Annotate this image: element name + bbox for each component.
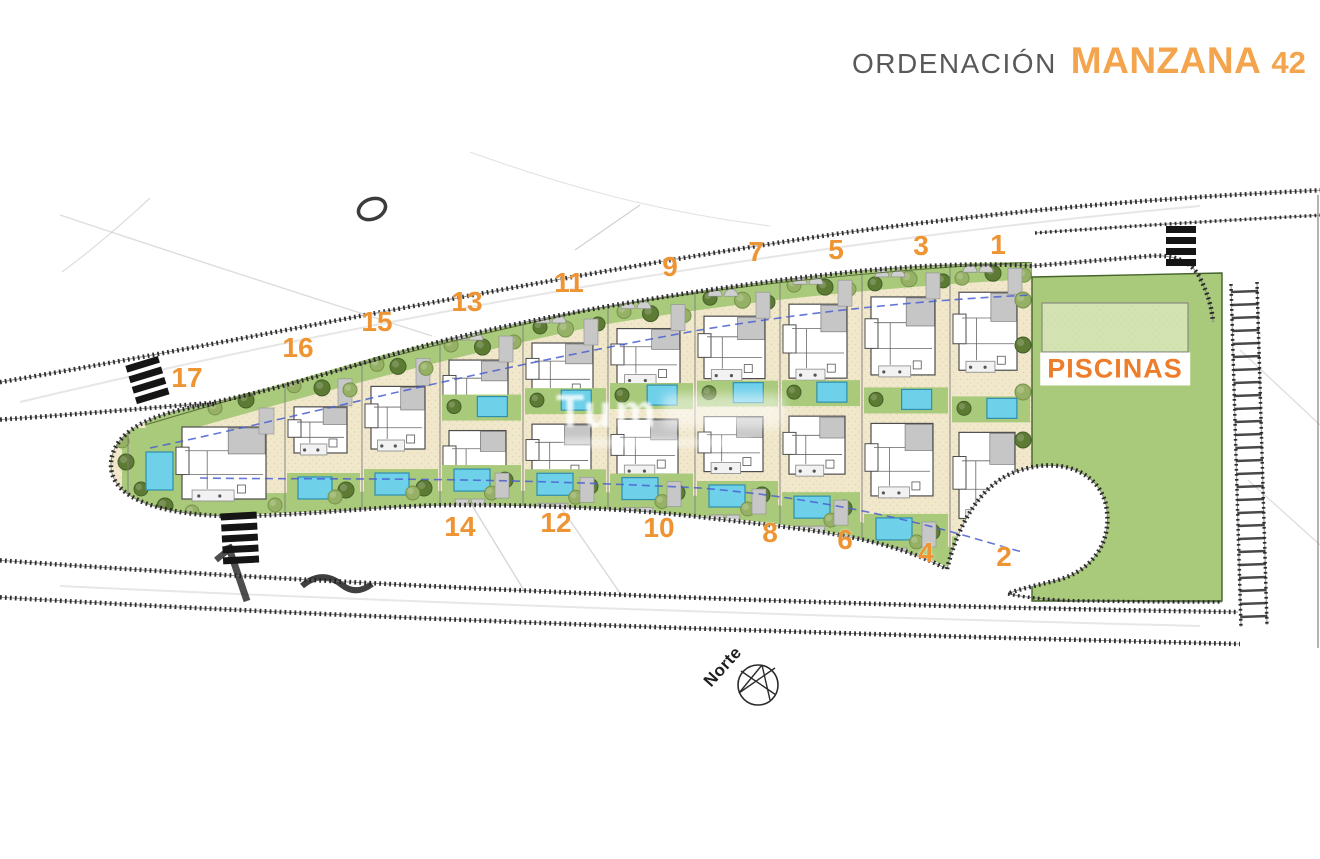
- site-plan-page: ORDENACIÓN MANZANA 42 1 2 3 4 5 6 7 8 9 …: [0, 0, 1320, 859]
- sidewalk-ladder: [1231, 195, 1318, 648]
- plot-label-9: 9: [662, 253, 678, 281]
- north-compass: [738, 665, 778, 705]
- plot-label-5: 5: [828, 236, 844, 264]
- site-plan-drawing: [0, 0, 1320, 859]
- pool-area-label: PISCINAS: [1040, 352, 1190, 385]
- plot-label-12: 12: [540, 509, 571, 537]
- title-number: 42: [1271, 45, 1305, 81]
- plot-label-8: 8: [762, 519, 778, 547]
- plot-label-14: 14: [444, 513, 475, 541]
- plot-label-13: 13: [451, 288, 482, 316]
- crosswalk: [1166, 226, 1196, 266]
- plot-label-11: 11: [554, 269, 584, 297]
- plot-label-3: 3: [913, 232, 929, 260]
- plot-label-10: 10: [643, 514, 674, 542]
- page-title: ORDENACIÓN MANZANA 42: [852, 40, 1306, 82]
- crosswalk: [125, 356, 169, 404]
- crosswalk: [221, 512, 260, 565]
- plot-label-15: 15: [361, 308, 392, 336]
- title-highlight: MANZANA: [1071, 40, 1262, 82]
- title-prefix: ORDENACIÓN: [852, 48, 1057, 80]
- plot-label-6: 6: [837, 526, 853, 554]
- plot-label-4: 4: [918, 539, 934, 567]
- plot-label-16: 16: [282, 334, 313, 362]
- plot-label-17: 17: [171, 364, 202, 392]
- plot-label-7: 7: [748, 238, 764, 266]
- plot-label-1: 1: [990, 231, 1006, 259]
- plot-label-2: 2: [996, 543, 1012, 571]
